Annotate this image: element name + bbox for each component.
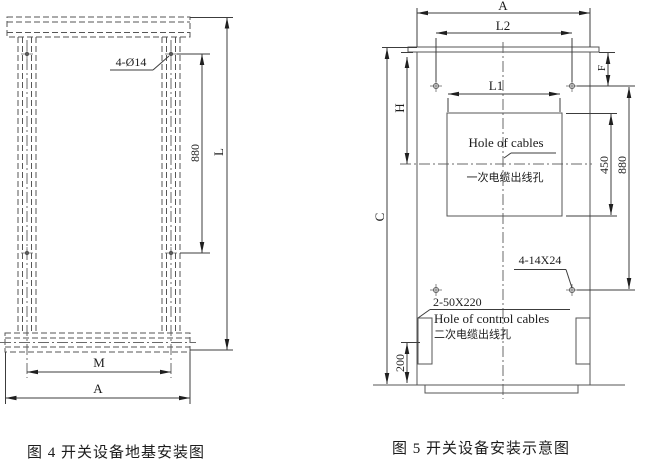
figure4-caption: 图 4 开关设备地基安装图 — [27, 444, 205, 461]
primary-cable-hole-label-cn: 一次电缆出线孔 — [467, 170, 544, 184]
hole-callout-label: 4-Ø14 — [116, 55, 147, 69]
figure5-installation-drawing: Hole of cables 一次电缆出线孔 — [372, 0, 635, 457]
technical-drawing-canvas: 4-Ø14 880 L M A — [0, 0, 645, 472]
dim-F: F — [577, 53, 621, 87]
dim-L1-label: L1 — [489, 78, 503, 93]
control-cable-hole-label-cn: 二次电缆出线孔 — [434, 327, 511, 341]
dim-880-left-figure: 880 — [177, 54, 210, 253]
dim-M: M — [27, 355, 171, 372]
dim-L-label: L — [211, 148, 226, 156]
dim-L2: L2 — [436, 18, 572, 82]
drawing-sheet: 4-Ø14 880 L M A — [0, 0, 645, 472]
cabinet-base — [373, 385, 625, 393]
figure4-foundation-drawing: 4-Ø14 880 L M A — [0, 17, 233, 461]
dim-C-label: C — [372, 213, 387, 222]
dim-L1: L1 — [448, 78, 560, 112]
dim-H: H — [392, 53, 413, 165]
dim-200: 200 — [393, 343, 420, 384]
hole-callout: 4-Ø14 — [110, 55, 169, 70]
dim-A-right-label: A — [498, 0, 508, 13]
dim-L2-label: L2 — [496, 18, 510, 33]
foundation-left-column — [18, 37, 36, 378]
dim-450: 450 — [566, 114, 617, 217]
dim-880-right-figure: 880 — [577, 86, 635, 290]
dim-450-label: 450 — [597, 156, 611, 174]
foundation-right-column — [162, 37, 180, 378]
dim-H-label: H — [392, 103, 407, 112]
anchor-hole-marker — [21, 48, 177, 259]
dim-C: C — [372, 48, 417, 385]
primary-cable-hole-label-en: Hole of cables — [468, 135, 543, 150]
dim-880-right-label: 880 — [615, 156, 629, 174]
dim-M-label: M — [93, 355, 105, 370]
dim-200-label: 200 — [393, 354, 407, 372]
foundation-bottom-bar — [0, 333, 196, 352]
dim-F-label: F — [596, 65, 608, 71]
bolt-hole-callout-label: 4-14X24 — [519, 253, 562, 267]
slot-callout-label: 2-50X220 — [433, 295, 482, 309]
bolt-hole-callout: 4-14X24 — [514, 253, 572, 288]
dim-880-label: 880 — [188, 144, 202, 162]
control-cable-callout: 2-50X220 Hole of control cables 二次电缆出线孔 — [418, 295, 570, 341]
dim-A-left-label: A — [93, 381, 103, 396]
control-cable-hole-label-en: Hole of control cables — [434, 311, 549, 326]
dim-L: L — [190, 18, 233, 351]
foundation-top-bar — [7, 17, 190, 37]
figure5-caption: 图 5 开关设备安装示意图 — [392, 439, 570, 457]
